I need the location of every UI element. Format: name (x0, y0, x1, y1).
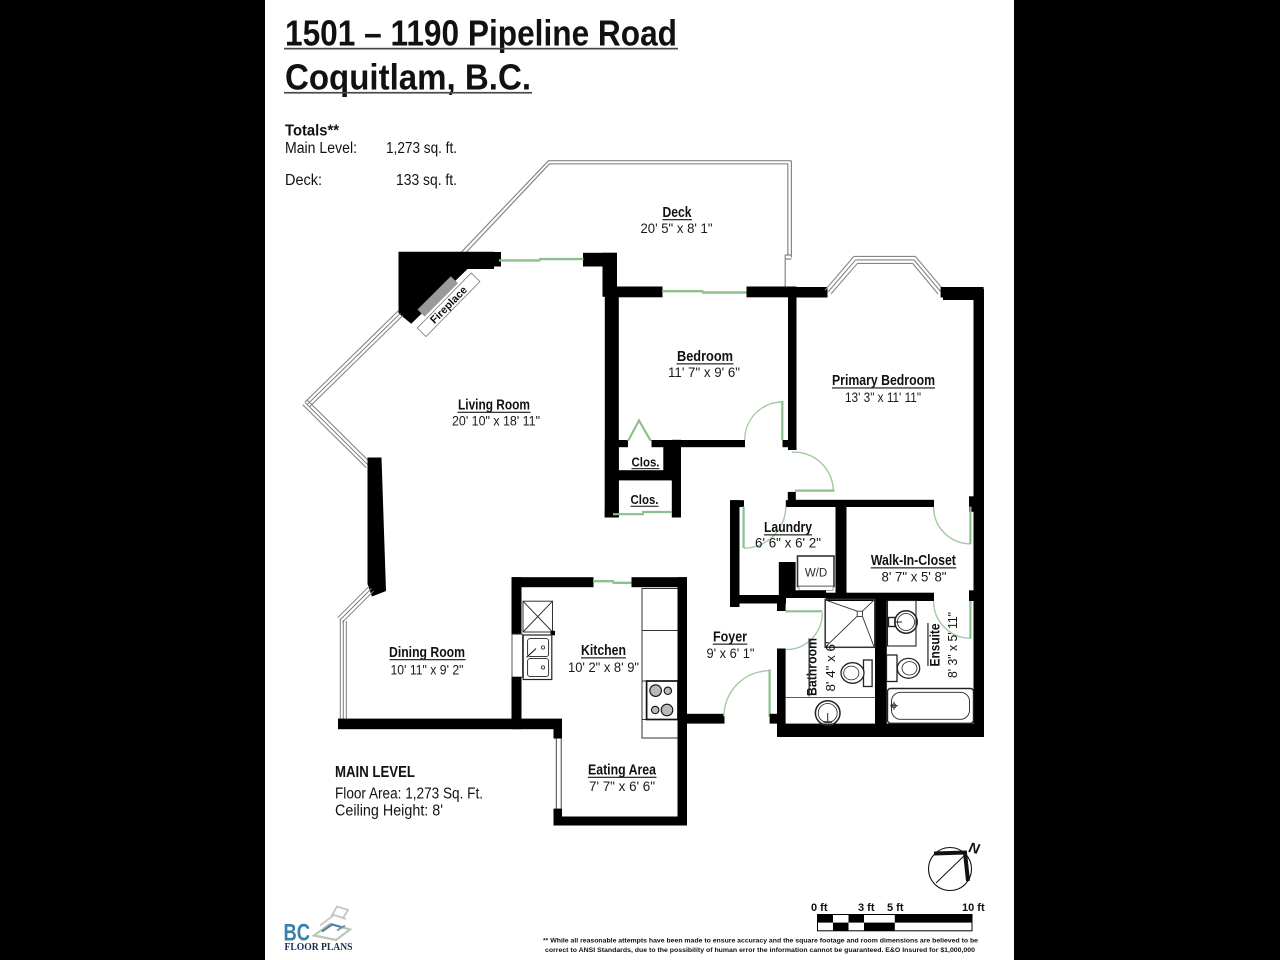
svg-text:3 ft: 3 ft (858, 902, 875, 914)
svg-text:13' 3" x 11' 11": 13' 3" x 11' 11" (845, 390, 921, 405)
svg-text:9' x 6' 1": 9' x 6' 1" (707, 646, 755, 661)
svg-text:8' 7" x 5' 8": 8' 7" x 5' 8" (882, 570, 947, 585)
svg-text:20' 5" x 8' 1": 20' 5" x 8' 1" (641, 221, 713, 236)
svg-text:Walk-In-Closet: Walk-In-Closet (871, 553, 956, 569)
svg-text:Clos.: Clos. (632, 455, 660, 470)
svg-text:Bedroom: Bedroom (677, 349, 733, 365)
svg-text:1501 – 1190 Pipeline Road: 1501 – 1190 Pipeline Road (285, 13, 677, 54)
svg-text:8' 3" x 5' 11": 8' 3" x 5' 11" (945, 612, 960, 678)
svg-text:Dining Room: Dining Room (389, 645, 465, 661)
svg-text:0 ft: 0 ft (811, 902, 828, 914)
svg-text:** While all reasonable attemp: ** While all reasonable attempts have be… (543, 938, 978, 945)
svg-text:Kitchen: Kitchen (581, 643, 626, 659)
svg-text:Deck:: Deck: (285, 172, 322, 189)
svg-text:8' 4" x 6': 8' 4" x 6' (823, 642, 838, 692)
svg-text:correct to ANSI Standards, due: correct to ANSI Standards, due to the po… (545, 947, 975, 954)
svg-text:Ensuite: Ensuite (928, 623, 943, 666)
svg-text:Foyer: Foyer (713, 630, 747, 646)
svg-text:FLOOR PLANS: FLOOR PLANS (285, 941, 353, 953)
svg-text:Living Room: Living Room (458, 398, 530, 414)
svg-text:5 ft: 5 ft (887, 902, 904, 914)
svg-text:20' 10" x 18' 11": 20' 10" x 18' 11" (452, 414, 540, 429)
svg-text:1,273 sq. ft.: 1,273 sq. ft. (386, 140, 457, 157)
svg-text:Main Level:: Main Level: (285, 140, 357, 157)
svg-text:133 sq. ft.: 133 sq. ft. (396, 172, 457, 189)
svg-text:Totals**: Totals** (285, 123, 340, 140)
svg-text:MAIN LEVEL: MAIN LEVEL (335, 764, 415, 781)
svg-text:11' 7" x 9' 6": 11' 7" x 9' 6" (668, 365, 740, 380)
svg-text:Floor Area: 1,273 Sq. Ft.: Floor Area: 1,273 Sq. Ft. (335, 786, 483, 803)
svg-text:Bathroom: Bathroom (805, 638, 820, 696)
svg-text:10 ft: 10 ft (962, 902, 985, 914)
svg-text:7' 7" x 6' 6": 7' 7" x 6' 6" (589, 779, 655, 794)
svg-text:Eating Area: Eating Area (588, 763, 657, 779)
svg-text:10' 2" x 8' 9": 10' 2" x 8' 9" (568, 660, 639, 675)
svg-text:Laundry: Laundry (764, 520, 812, 536)
svg-text:Deck: Deck (663, 205, 693, 221)
svg-text:W/D: W/D (805, 568, 827, 580)
svg-text:Primary Bedroom: Primary Bedroom (832, 373, 935, 389)
svg-text:Ceiling Height: 8': Ceiling Height: 8' (335, 803, 443, 820)
svg-text:10' 11" x 9' 2": 10' 11" x 9' 2" (391, 663, 464, 678)
svg-text:6' 6" x 6' 2": 6' 6" x 6' 2" (755, 536, 821, 551)
svg-text:Clos.: Clos. (631, 492, 659, 507)
svg-text:Coquitlam, B.C.: Coquitlam, B.C. (285, 57, 531, 98)
